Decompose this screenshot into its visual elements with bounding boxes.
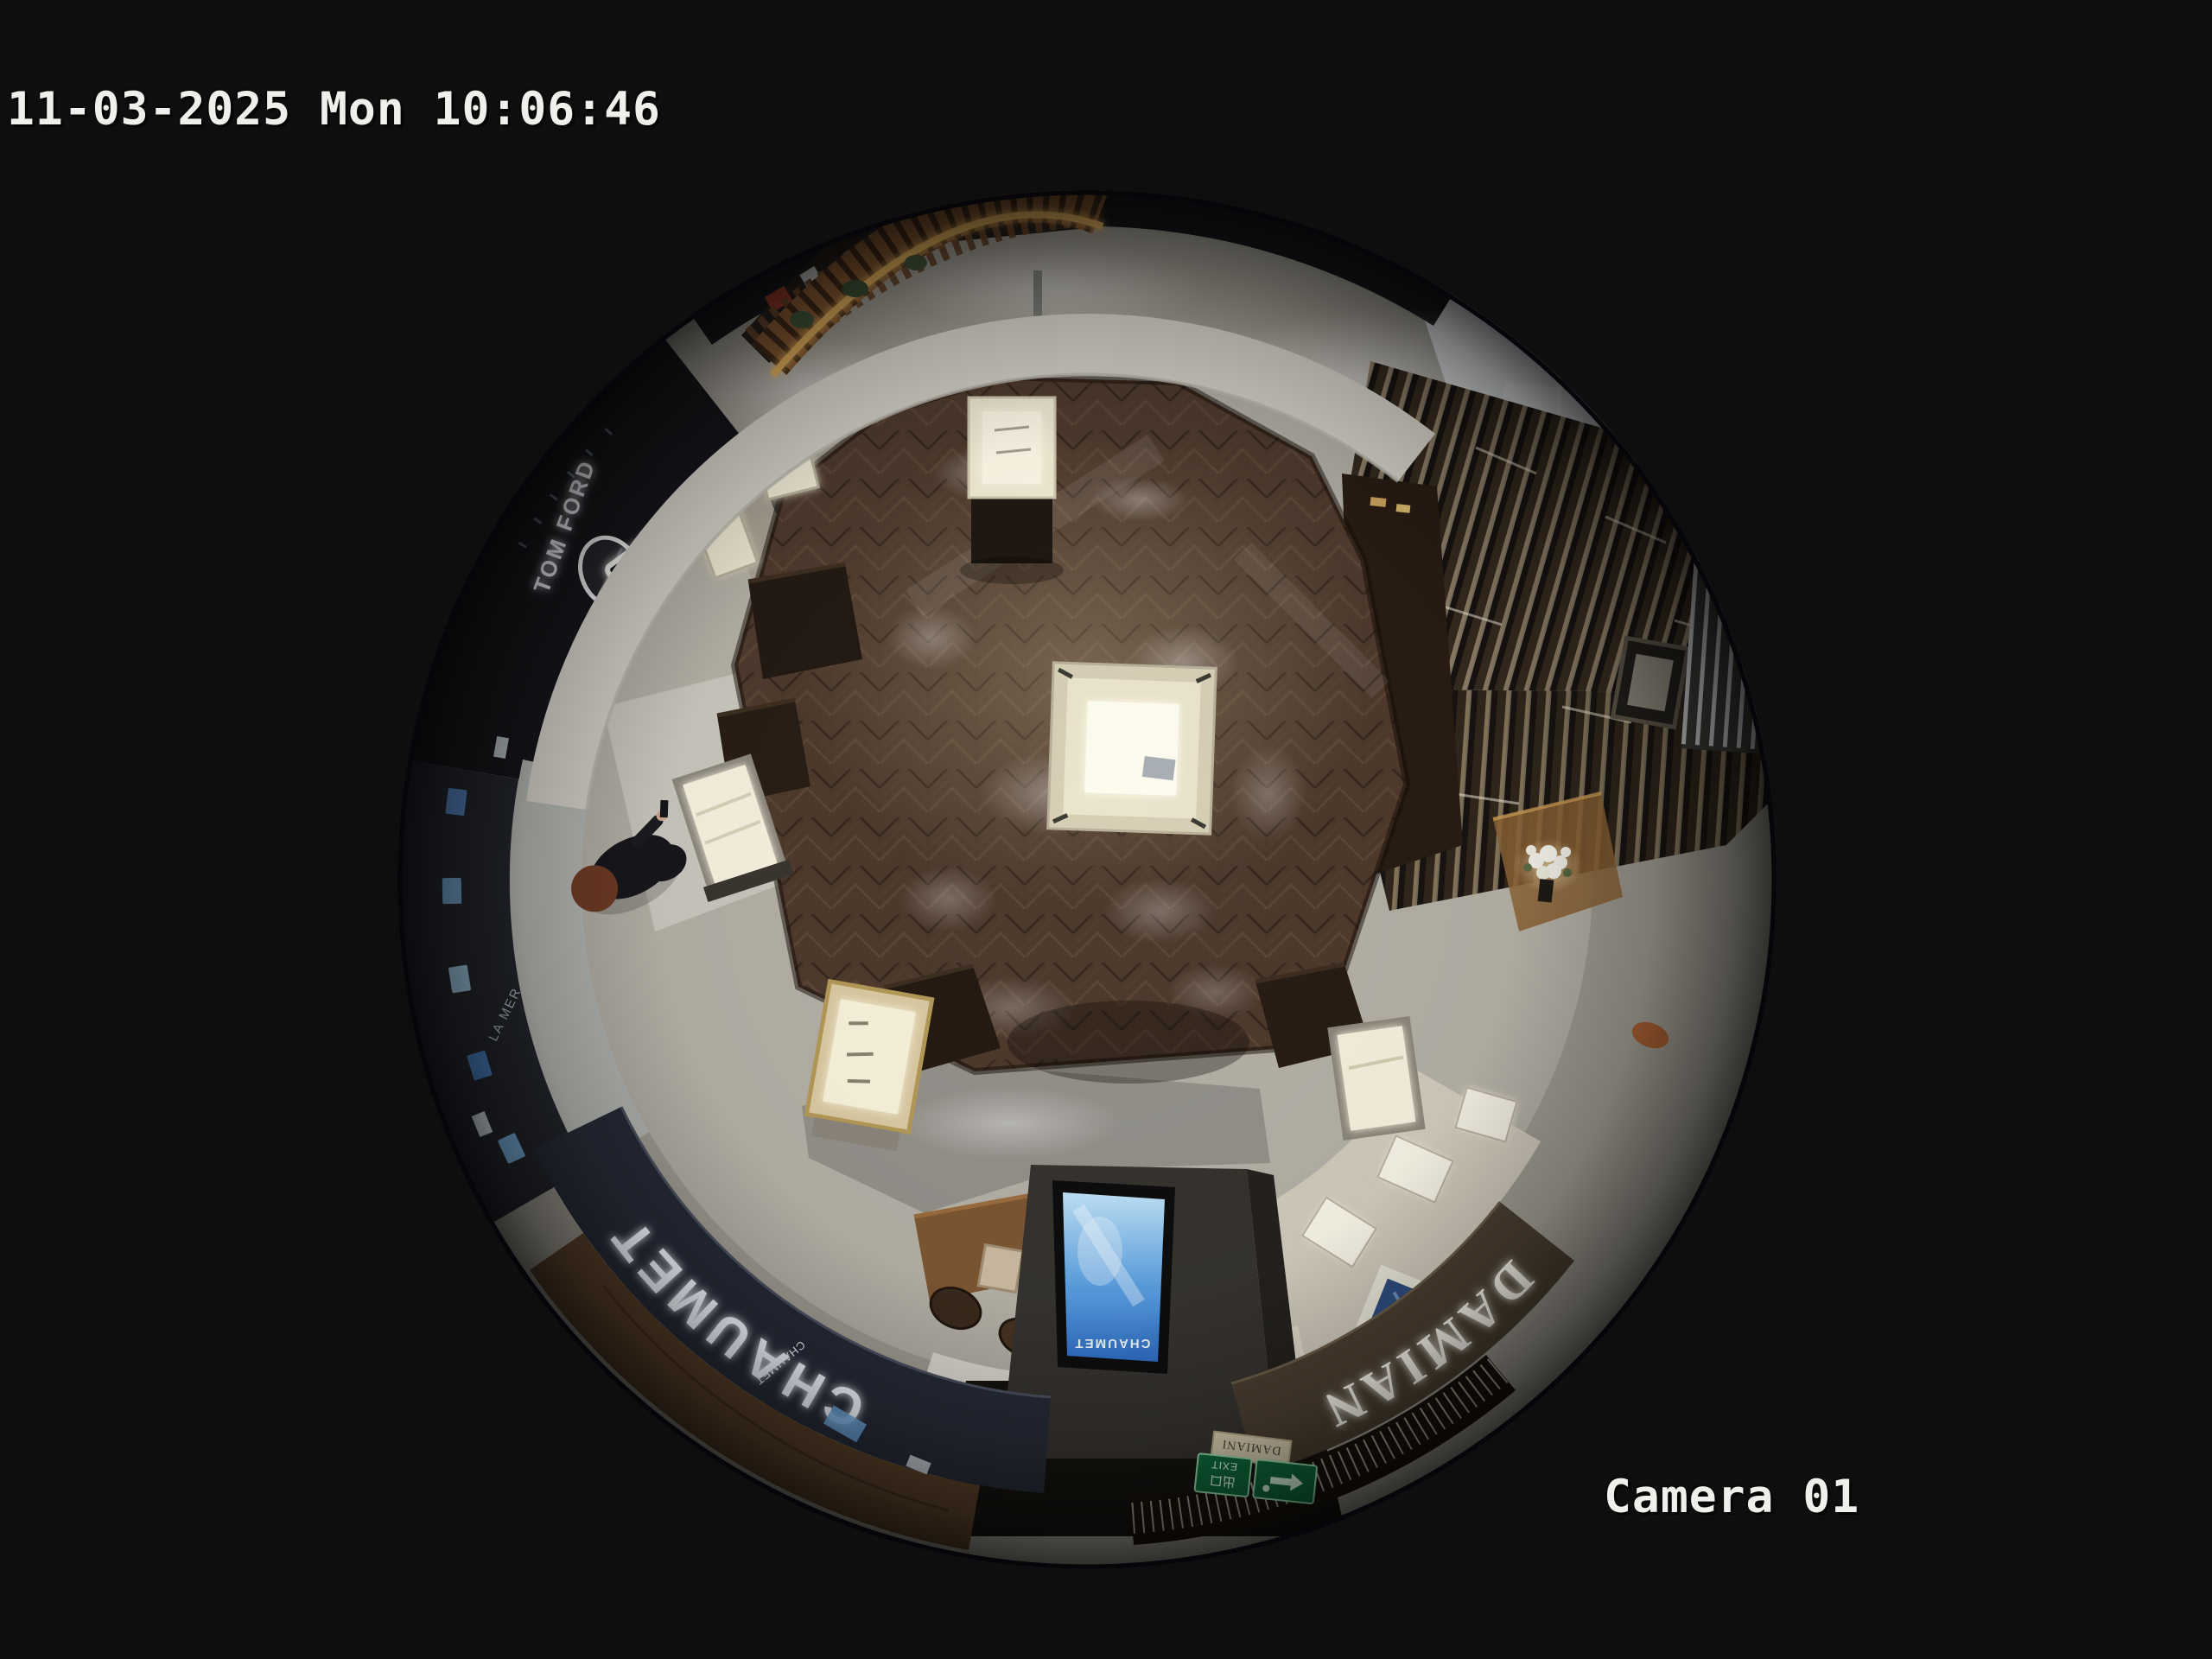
osd-camera-label: Camera 01 xyxy=(1604,1474,1859,1520)
osd-timestamp: 11-03-2025 Mon 10:06:46 xyxy=(7,86,661,132)
lens-vignette xyxy=(397,190,1777,1569)
cctv-viewer: TOM FORD TF xyxy=(0,0,2212,1659)
fisheye-video-frame: TOM FORD TF xyxy=(396,188,1778,1571)
